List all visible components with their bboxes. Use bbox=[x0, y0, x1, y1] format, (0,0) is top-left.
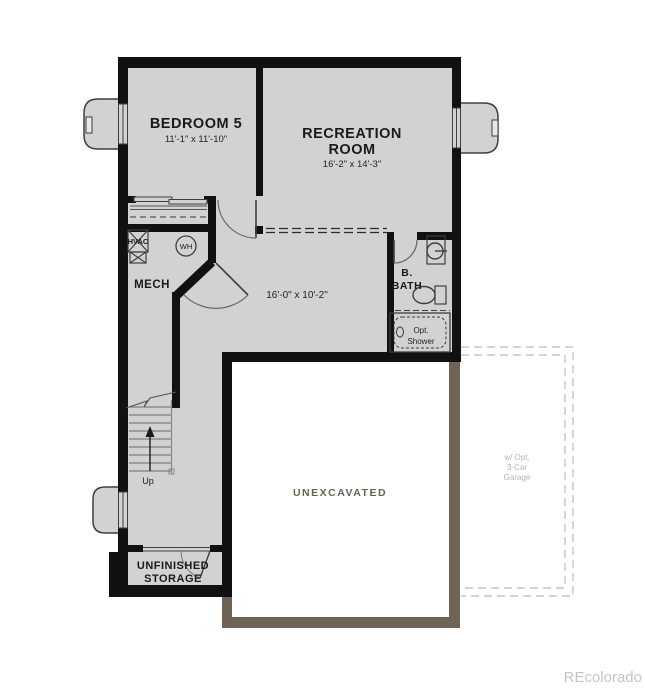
well-ladder bbox=[492, 120, 498, 136]
bath-label-line2: BATH bbox=[392, 280, 422, 292]
water-heater-label: WH bbox=[180, 242, 193, 251]
wall-segment bbox=[452, 148, 461, 362]
recolorado-watermark: REcolorado bbox=[564, 669, 642, 686]
hall-dims: 16'-0" x 10'-2" bbox=[266, 290, 328, 301]
garage-option-line3: Garage bbox=[504, 473, 531, 482]
basement-floorplan: HVAC WH Up BEDROOM 5 1 bbox=[0, 0, 645, 693]
window-well-right-upper bbox=[458, 103, 498, 153]
wall-segment bbox=[222, 352, 461, 362]
recreation-label-line2: ROOM bbox=[328, 142, 375, 158]
bedroom5-label: BEDROOM 5 bbox=[150, 116, 242, 132]
wall-segment bbox=[222, 352, 232, 590]
bedroom5-dims: 11'-1" x 11'-10" bbox=[165, 134, 227, 145]
closet-slider-panel bbox=[134, 197, 172, 202]
closet-slider-panel bbox=[169, 200, 207, 205]
recreation-dims: 16'-2" x 14'-3" bbox=[323, 159, 381, 170]
mech-label: MECH bbox=[134, 279, 170, 291]
wall-segment bbox=[172, 292, 180, 408]
wall-segment bbox=[118, 57, 128, 104]
wall-segment bbox=[208, 232, 216, 263]
unexcavated-border-bottom bbox=[222, 617, 460, 628]
well-ladder bbox=[86, 117, 92, 133]
hvac-label: HVAC bbox=[128, 237, 149, 246]
stairs-up-label: Up bbox=[142, 476, 154, 486]
wall-segment bbox=[118, 545, 143, 552]
wall-segment bbox=[118, 57, 461, 68]
wall-segment bbox=[452, 57, 461, 108]
wall-segment bbox=[256, 57, 263, 196]
unexcavated-label: UNEXCAVATED bbox=[293, 487, 387, 499]
storage-label-line2: STORAGE bbox=[144, 573, 202, 585]
shower-label-line1: Opt. bbox=[413, 326, 428, 335]
unexcavated-border-right bbox=[449, 360, 460, 628]
bath-label-line1: B. bbox=[401, 267, 413, 279]
garage-option-line1: w/ Opt. bbox=[503, 453, 529, 462]
recreation-label-line1: RECREATION bbox=[302, 126, 402, 142]
floorplan-page: HVAC WH Up BEDROOM 5 1 bbox=[0, 0, 645, 693]
garage-option-line2: 3-Car bbox=[507, 463, 527, 472]
wall-segment bbox=[118, 224, 216, 232]
wall-segment bbox=[118, 144, 128, 492]
shower-label-line2: Shower bbox=[407, 337, 434, 346]
wall-segment bbox=[109, 585, 232, 597]
storage-label-line1: UNFINISHED bbox=[137, 560, 209, 572]
